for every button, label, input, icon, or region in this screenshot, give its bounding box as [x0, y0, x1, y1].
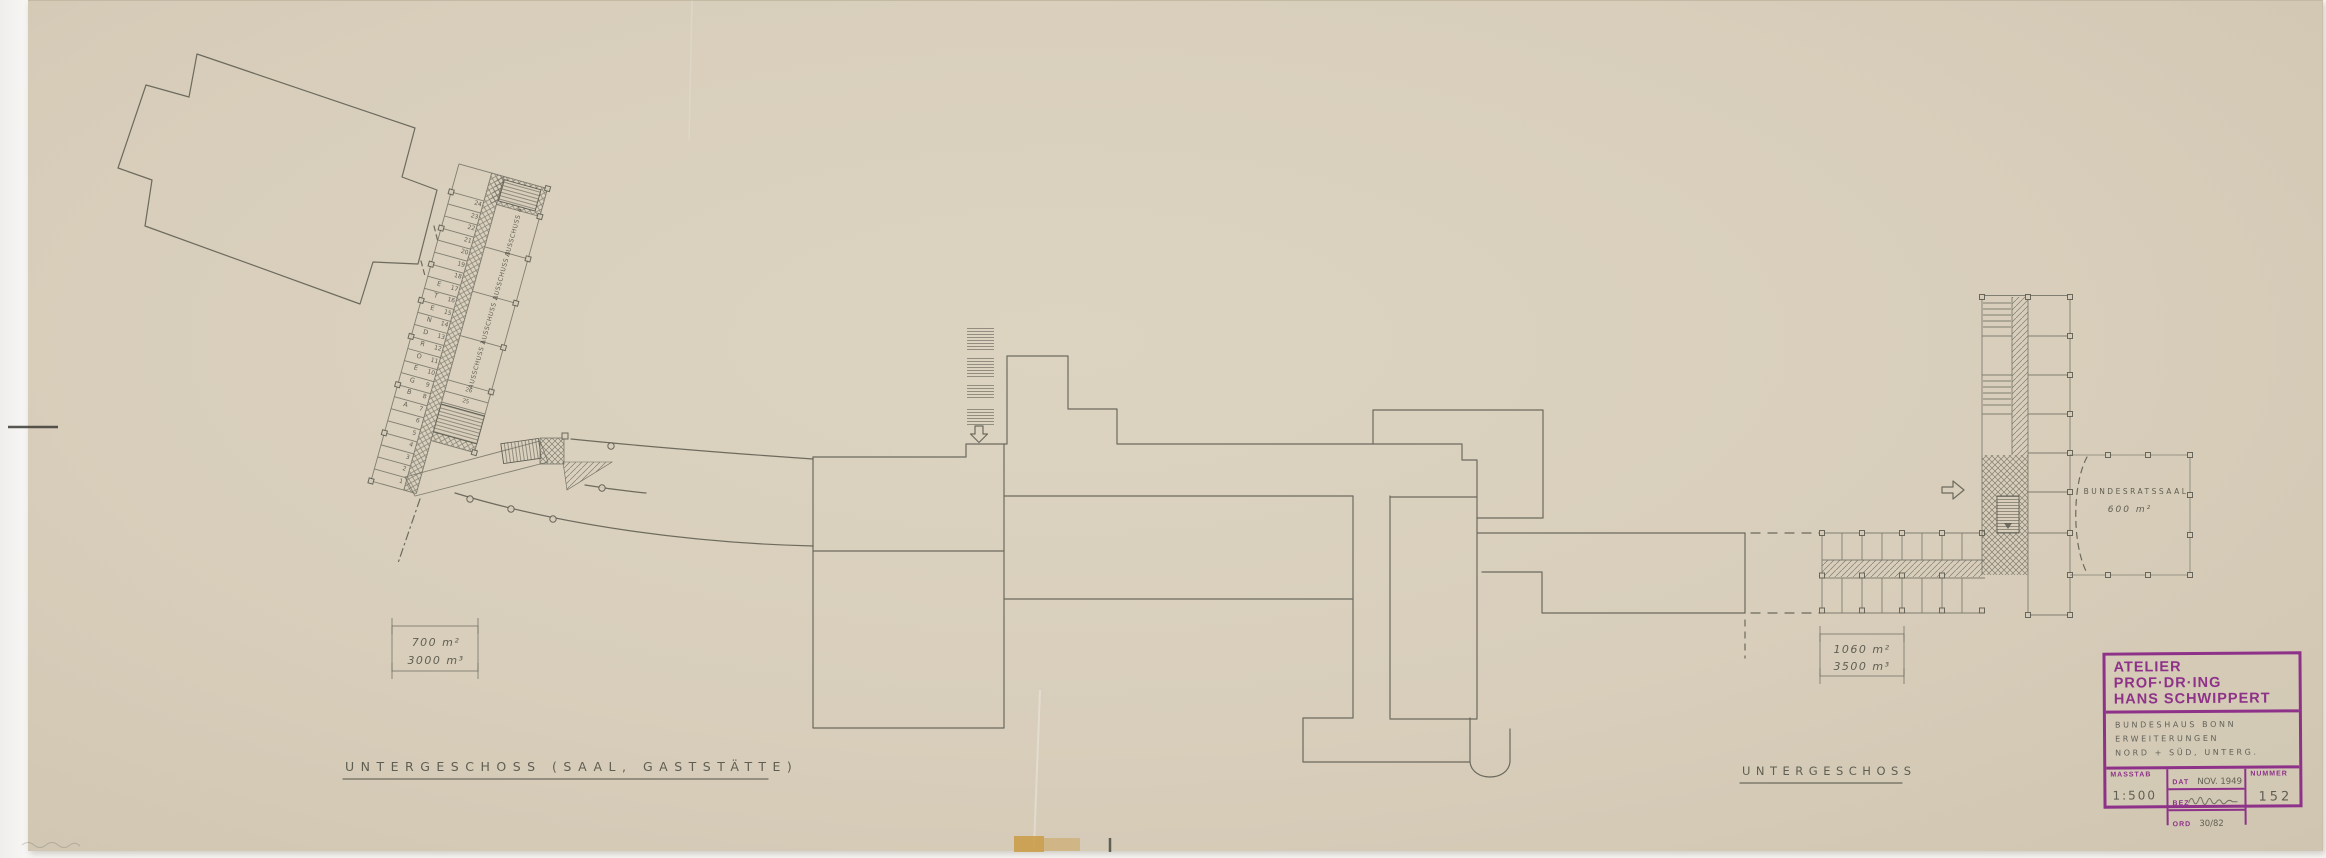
stall-number: 17	[450, 284, 459, 293]
date-field: DAT NOV. 1949	[2168, 769, 2244, 791]
date-label: DAT	[2168, 777, 2189, 786]
volume-value: 3000 m³	[407, 654, 464, 667]
wing-letter: E	[436, 280, 442, 289]
tape-stain	[1014, 836, 1044, 852]
stall-number: 6	[415, 417, 421, 425]
wing-letter: A	[402, 400, 409, 409]
corner-stair	[501, 438, 541, 463]
room-label: AUSSCHUSS 1	[467, 339, 487, 390]
site-building-outline	[118, 54, 437, 304]
studio-line2: HANS SCHWIPPERT	[2114, 690, 2293, 707]
stall-number: 9	[425, 381, 431, 389]
right-arrow-icon	[1942, 481, 1964, 499]
scanned-drawing-sheet: 1 2 3 4 5 6 7 8 9 10 11 12 13 14 15 16 1…	[0, 0, 2326, 858]
stall-number: 13	[436, 333, 445, 342]
wing-letter: R	[419, 339, 426, 348]
stall-number: 8	[422, 393, 428, 401]
date-value: NOV. 1949	[2194, 776, 2242, 787]
stall-number: 15	[443, 308, 452, 317]
apse-bay	[1470, 718, 1510, 777]
north-annex-outline	[1373, 410, 1543, 518]
stall-number: 24	[473, 200, 482, 209]
project-line2: ERWEITERUNGEN	[2115, 731, 2293, 746]
wing-letter: G	[409, 376, 416, 385]
hall-area: 600 m²	[2108, 505, 2152, 515]
studio-line1: ATELIER PROF·DR·ING	[2114, 658, 2293, 691]
project-description: BUNDESHAUS BONN ERWEITERUNGEN NORD + SÜD…	[2106, 712, 2299, 769]
wing-letter: B	[406, 388, 412, 397]
stall-number: 19	[456, 260, 465, 269]
wing-letter: O	[416, 352, 423, 361]
project-line3: NORD + SÜD, UNTERG.	[2115, 745, 2293, 760]
area-value: 1060 m²	[1833, 643, 1890, 656]
stall-number: 18	[453, 272, 462, 281]
studio-name: ATELIER PROF·DR·ING HANS SCHWIPPERT	[2105, 654, 2298, 713]
stall-number: 7	[418, 405, 424, 413]
label-untergeschoss-left: UNTERGESCHOSS (SAAL, GASTSTÄTTE)	[343, 759, 798, 779]
number-field: NUMMER 152	[2246, 768, 2299, 824]
stall-number: 4	[408, 441, 414, 449]
room-label: AUSSCHUSS 2	[480, 295, 500, 346]
stall-number: 22	[467, 224, 476, 233]
central-building	[813, 356, 1745, 777]
scale-value: 1:500	[2106, 778, 2166, 802]
order-field: ORD 30/82	[2169, 811, 2245, 831]
hall-name: BUNDESRATSSAAL	[2084, 487, 2189, 496]
hall-column-squares	[2106, 453, 2193, 578]
bundesratssaal-outline: BUNDESRATSSAAL 600 m²	[2070, 453, 2193, 578]
stall-number: 10	[427, 368, 436, 377]
stall-number: 2	[402, 465, 408, 473]
drawn-by-field: BEZ	[2168, 790, 2244, 812]
number-value: 152	[2246, 777, 2299, 804]
faint-pencil-note	[22, 843, 80, 848]
stall-number: 12	[433, 344, 442, 353]
down-arrow-icon	[971, 426, 988, 443]
order-value: 30/82	[2196, 818, 2224, 829]
area-value: 700 m²	[412, 636, 461, 649]
stall-number: 3	[405, 454, 411, 462]
number-label: NUMMER	[2246, 768, 2299, 777]
scale-field: MASSTAB 1:500	[2106, 769, 2168, 825]
project-line1: BUNDESHAUS BONN	[2115, 717, 2293, 732]
wing-letter: D	[422, 328, 429, 337]
wing-letter: E	[413, 363, 419, 372]
paper-blemishes	[8, 0, 1110, 852]
order-label: ORD	[2169, 819, 2192, 828]
wing-letter: E	[429, 304, 435, 313]
plan-title: UNTERGESCHOSS (SAAL, GASTSTÄTTE)	[345, 759, 798, 774]
stall-number: 11	[430, 357, 439, 366]
stall-number: 5	[412, 429, 418, 437]
signature-scribble	[2186, 792, 2238, 812]
stall-number: 21	[463, 236, 472, 245]
stall-number: 20	[460, 248, 469, 257]
stall-number: 23	[470, 212, 479, 221]
wing-letter: N	[426, 315, 433, 324]
stall-number: 16	[447, 296, 456, 305]
label-untergeschoss-right: UNTERGESCHOSS	[1740, 764, 1917, 783]
volume-value: 3500 m³	[1833, 660, 1890, 673]
wing-letter: T	[432, 291, 439, 300]
plan-title: UNTERGESCHOSS	[1742, 764, 1917, 778]
title-block-stamp: ATELIER PROF·DR·ING HANS SCHWIPPERT BUND…	[2102, 651, 2302, 808]
stall-number: 1	[398, 478, 404, 486]
area-box-left: 700 m² 3000 m³	[392, 618, 478, 679]
scale-label: MASSTAB	[2106, 769, 2166, 778]
curved-corridor	[398, 433, 813, 563]
area-box-right: 1060 m² 3500 m³	[1820, 626, 1904, 684]
plan-drawing-svg: 1 2 3 4 5 6 7 8 9 10 11 12 13 14 15 16 1…	[0, 0, 2326, 858]
annex-cell-number: 25	[461, 398, 470, 406]
colonnade	[1745, 531, 1985, 659]
central-stairs	[967, 328, 994, 443]
room-label: AUSSCHUSS 4	[504, 207, 524, 258]
stall-number: 14	[440, 320, 449, 329]
